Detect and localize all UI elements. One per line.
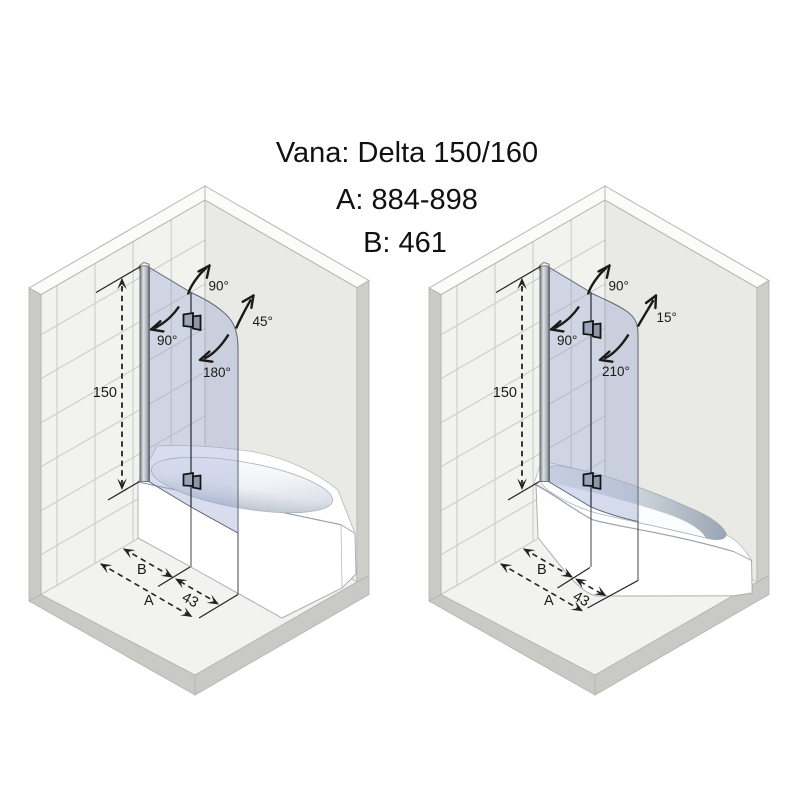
svg-text:210°: 210° [602,364,630,379]
svg-text:45°: 45° [253,314,273,329]
svg-text:180°: 180° [203,365,231,380]
svg-text:B: B [537,562,547,578]
svg-text:B: B [137,562,147,578]
svg-text:A: 884-898: A: 884-898 [336,184,478,216]
svg-text:A: A [144,593,154,609]
svg-text:90°: 90° [609,279,629,294]
svg-text:B: 461: B: 461 [363,227,447,259]
svg-text:15°: 15° [657,310,677,325]
svg-text:Vana: Delta 150/160: Vana: Delta 150/160 [276,137,538,169]
svg-text:90°: 90° [157,333,177,348]
svg-text:A: A [544,593,554,609]
svg-text:90°: 90° [209,279,229,294]
svg-text:150: 150 [493,385,517,401]
svg-text:150: 150 [93,385,117,401]
svg-text:90°: 90° [557,333,577,348]
